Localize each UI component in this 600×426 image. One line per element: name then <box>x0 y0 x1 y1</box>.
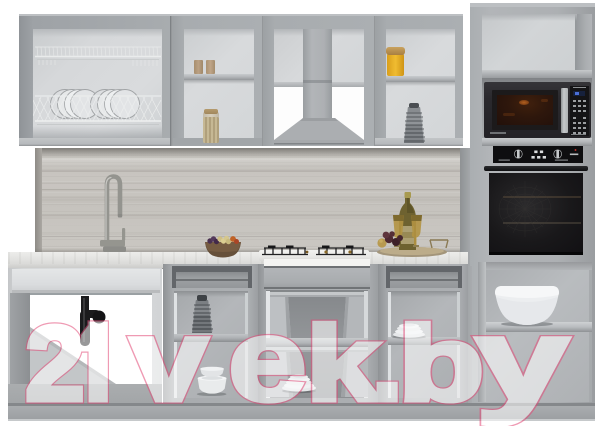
svg-text:e: e <box>229 296 307 425</box>
svg-text:v: v <box>131 295 208 424</box>
svg-text:y: y <box>476 296 568 425</box>
svg-text:2: 2 <box>25 304 84 423</box>
svg-text:b: b <box>398 305 484 423</box>
svg-text:k: k <box>306 305 380 423</box>
